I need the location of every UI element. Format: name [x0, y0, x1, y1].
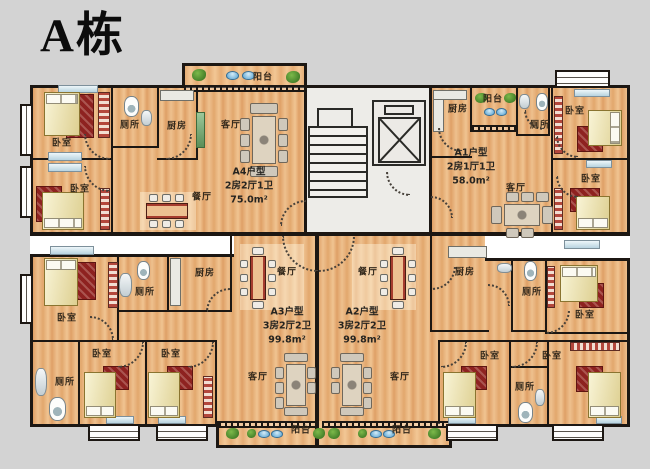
room-label-bedroom: 卧室: [565, 108, 585, 117]
chair: [408, 288, 416, 296]
room-label-kitchen: 厨房: [167, 123, 187, 132]
chair: [149, 220, 158, 228]
sofa-cushion: [250, 103, 278, 114]
bay-window: [20, 274, 33, 324]
wall: [215, 340, 217, 424]
room-label-toilet: 厕所: [530, 122, 550, 131]
bed: [443, 372, 476, 418]
room-label-dining: 餐厅: [358, 269, 378, 278]
wall: [516, 134, 550, 136]
dining-table: [250, 256, 266, 300]
unit-name: A1户型: [447, 146, 495, 160]
sofa-cushion: [340, 353, 364, 362]
plant-icon: [192, 69, 206, 81]
plant-icon: [504, 93, 516, 103]
room-label-bedroom: 卧室: [92, 351, 112, 360]
sofa-cushion: [491, 206, 502, 224]
floor-plan: A栋: [0, 0, 650, 469]
bowl-icon: [484, 108, 495, 116]
plant-icon: [428, 428, 441, 439]
wardrobe: [547, 266, 555, 308]
chair: [175, 220, 184, 228]
sofa-cushion: [521, 192, 534, 202]
sofa-cushion: [536, 192, 549, 202]
unit-label-a2: A2户型 3房2厅2卫 99.8m²: [338, 305, 386, 346]
kitchen-counter: [433, 90, 467, 100]
unit-label-a3: A3户型 3房2厅2卫 99.8m²: [263, 305, 311, 346]
unit-area: 75.0m²: [225, 193, 273, 207]
room-label-bedroom: 卧室: [52, 140, 72, 149]
wall: [509, 340, 511, 424]
wall: [167, 256, 169, 312]
stairs: [308, 126, 368, 198]
room-label-toilet: 厕所: [515, 384, 535, 393]
unit-layout: 2房2厅1卫: [225, 179, 273, 193]
unit-label-a4: A4户型 2房2厅1卫 75.0m²: [225, 165, 273, 206]
sofa-cushion: [542, 206, 553, 224]
room-label-kitchen: 厨房: [455, 269, 475, 278]
sofa-cushion: [340, 407, 364, 416]
unit-area: 99.8m²: [338, 333, 386, 347]
wardrobe: [203, 376, 213, 418]
chair: [380, 274, 388, 282]
window-sill: [50, 246, 94, 255]
room-label-balcony: 阳台: [291, 427, 311, 436]
chair: [392, 247, 404, 255]
room-label-living: 客厅: [390, 374, 410, 383]
room-label-bedroom: 卧室: [480, 353, 500, 362]
bed: [148, 372, 180, 418]
wall: [157, 88, 159, 148]
bowl-icon: [370, 430, 382, 438]
sofa-cushion: [278, 118, 288, 131]
building-title: A栋: [40, 8, 125, 64]
wall: [438, 340, 440, 424]
wardrobe: [108, 262, 118, 308]
chair: [162, 220, 171, 228]
sink-icon: [141, 110, 152, 126]
chair: [175, 194, 184, 202]
bay-window: [552, 424, 604, 441]
wall: [157, 158, 198, 160]
bay-window: [20, 166, 33, 218]
bowl-icon: [226, 71, 239, 80]
toilet-icon: [49, 397, 66, 421]
unit-layout: 3房2厅2卫: [338, 319, 386, 333]
bowl-icon: [496, 108, 507, 116]
bed: [44, 92, 80, 136]
wall: [516, 88, 518, 136]
toilet-icon: [124, 96, 139, 117]
sofa-cushion: [363, 397, 372, 409]
dining-table: [390, 256, 406, 300]
sofa-cushion: [521, 228, 534, 238]
wall: [430, 330, 489, 332]
wall: [145, 342, 147, 424]
unit-area: 99.8m²: [263, 333, 311, 347]
wall: [230, 234, 232, 312]
bay-window: [446, 424, 498, 441]
chair: [240, 260, 248, 268]
unit-name: A2户型: [338, 305, 386, 319]
toilet-icon: [524, 261, 537, 281]
room-label-balcony: 阳台: [253, 74, 273, 83]
balcony-rail: [184, 85, 305, 92]
chair: [149, 194, 158, 202]
bed: [576, 196, 610, 230]
bay-window: [555, 70, 610, 88]
kitchen-counter: [170, 258, 181, 306]
plant-icon: [286, 71, 300, 83]
unit-layout: 2房1厅1卫: [447, 160, 495, 174]
coffee-table: [252, 116, 276, 164]
sofa-cushion: [275, 382, 284, 394]
chair: [380, 288, 388, 296]
chair: [408, 260, 416, 268]
sofa-cushion: [331, 382, 340, 394]
bay-window: [88, 424, 140, 441]
window-sill: [48, 163, 82, 172]
elevator-button-panel: [384, 105, 414, 115]
wall: [111, 88, 113, 160]
elevator-x-icon: [378, 117, 421, 163]
wall: [111, 146, 159, 148]
wardrobe: [98, 92, 110, 138]
room-label-living: 客厅: [248, 374, 268, 383]
chair: [240, 274, 248, 282]
room-label-bedroom: 卧室: [542, 353, 562, 362]
room-label-living: 客厅: [221, 122, 241, 131]
wardrobe: [570, 342, 620, 351]
sofa-cushion: [278, 150, 288, 163]
room-label-toilet: 厕所: [55, 379, 75, 388]
chair: [408, 274, 416, 282]
sofa-cushion: [307, 382, 316, 394]
sink-icon: [35, 368, 47, 396]
chair: [268, 274, 276, 282]
balcony-rail: [322, 421, 449, 428]
window-sill: [586, 160, 612, 168]
plant-icon: [226, 428, 239, 439]
sofa-cushion: [363, 367, 372, 379]
sofa-cushion: [363, 382, 372, 394]
bed: [588, 110, 622, 146]
chair: [268, 288, 276, 296]
toilet-icon: [518, 402, 533, 423]
plant-icon: [313, 428, 325, 439]
sofa-cushion: [240, 150, 250, 163]
sofa-cushion: [275, 397, 284, 409]
bed: [588, 372, 621, 418]
bed: [84, 372, 116, 418]
sofa-cushion: [240, 118, 250, 131]
chair: [162, 194, 171, 202]
sofa-cushion: [506, 228, 519, 238]
room-label-toilet: 厕所: [120, 122, 140, 131]
room-label-bedroom: 卧室: [161, 351, 181, 360]
toilet-icon: [137, 261, 150, 280]
bowl-icon: [258, 430, 270, 438]
unit-layout: 3房2厅2卫: [263, 319, 311, 333]
plant-icon: [328, 428, 340, 439]
sink-icon: [497, 263, 512, 273]
wall: [545, 332, 628, 334]
sofa-cushion: [331, 367, 340, 379]
room-label-balcony: 阳台: [392, 427, 412, 436]
room-label-toilet: 厕所: [522, 289, 542, 298]
unit-name: A3户型: [263, 305, 311, 319]
bay-window: [20, 104, 33, 156]
bed: [44, 258, 78, 306]
bed: [42, 192, 84, 230]
sofa-cushion: [506, 192, 519, 202]
sofa-cushion: [278, 134, 288, 147]
plant-icon: [358, 429, 367, 438]
unit-area: 58.0m²: [447, 174, 495, 188]
room-label-toilet: 厕所: [135, 289, 155, 298]
unit-name: A4户型: [225, 165, 273, 179]
chair: [240, 288, 248, 296]
room-label-bedroom: 卧室: [581, 176, 601, 185]
unit-label-a1: A1户型 2房1厅1卫 58.0m²: [447, 146, 495, 187]
kitchen-counter: [160, 90, 194, 101]
room-label-dining: 餐厅: [192, 194, 212, 203]
sink-icon: [119, 273, 132, 297]
coffee-table: [504, 204, 540, 226]
bowl-icon: [271, 430, 283, 438]
window-sill: [48, 152, 82, 161]
room-label-balcony: 阳台: [483, 96, 503, 105]
sofa-cushion: [284, 353, 308, 362]
coffee-table: [286, 364, 306, 406]
wall: [111, 158, 113, 232]
plant-icon: [247, 429, 256, 438]
wardrobe: [554, 188, 563, 230]
sofa-cushion: [284, 407, 308, 416]
room-label-kitchen: 厨房: [448, 106, 468, 115]
room-label-bedroom: 卧室: [57, 315, 77, 324]
display-cabinet: [196, 112, 205, 148]
chair: [268, 260, 276, 268]
dining-table: [146, 203, 188, 219]
chair: [252, 247, 264, 255]
balcony-rail: [472, 125, 516, 132]
wardrobe: [100, 188, 110, 230]
toilet-icon: [536, 93, 548, 111]
room-label-dining: 餐厅: [277, 269, 297, 278]
stair-landing: [317, 108, 353, 128]
room-label-kitchen: 厨房: [195, 270, 215, 279]
bay-window: [156, 424, 208, 441]
room-label-living: 客厅: [506, 185, 526, 194]
bed: [560, 265, 598, 302]
window-sill: [564, 240, 600, 249]
sink-icon: [519, 94, 530, 109]
sofa-cushion: [307, 367, 316, 379]
kitchen-counter: [448, 246, 487, 258]
room-label-bedroom: 卧室: [575, 312, 595, 321]
sink-icon: [535, 389, 545, 406]
chair: [392, 301, 404, 309]
wall: [78, 342, 80, 424]
chair: [380, 260, 388, 268]
sofa-cushion: [240, 134, 250, 147]
window-sill: [574, 89, 610, 97]
coffee-table: [342, 364, 362, 406]
sofa-cushion: [275, 367, 284, 379]
room-label-bedroom: 卧室: [70, 186, 90, 195]
wall: [511, 330, 547, 332]
